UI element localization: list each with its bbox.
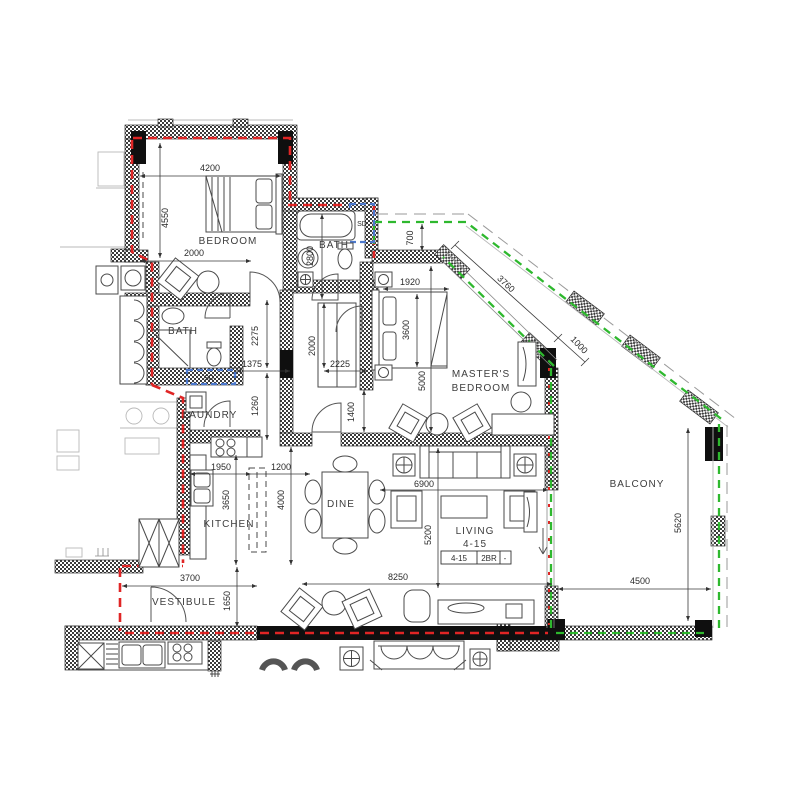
dim-2800: 2800 bbox=[305, 246, 315, 266]
bedroom-door bbox=[250, 272, 280, 302]
master-bedroom-furniture bbox=[372, 272, 554, 442]
dim-1650: 1650 bbox=[222, 591, 232, 611]
unit-tag: 4-15 2BR - bbox=[441, 551, 511, 564]
dim-4000: 4000 bbox=[276, 490, 286, 510]
room-label-living: LIVING bbox=[456, 526, 495, 537]
dim-1950: 1950 bbox=[211, 462, 231, 472]
dim-4200: 4200 bbox=[200, 163, 220, 173]
dim-6900: 6900 bbox=[414, 479, 434, 489]
living-lower-furniture bbox=[281, 588, 534, 630]
bath-left-fixtures bbox=[152, 308, 221, 368]
room-label-masters-2: BEDROOM bbox=[452, 383, 511, 394]
dim-5620: 5620 bbox=[673, 513, 683, 533]
lower-neighbour-furniture bbox=[78, 641, 490, 677]
room-label-balcony: BALCONY bbox=[610, 479, 665, 490]
dim-1375: 1375 bbox=[242, 359, 262, 369]
dim-2225: 2225 bbox=[330, 359, 350, 369]
room-label-masters-1: MASTER'S bbox=[452, 369, 510, 380]
dim-1200: 1200 bbox=[271, 462, 291, 472]
living-furniture bbox=[391, 446, 537, 532]
sd-label-left: SD bbox=[204, 375, 214, 382]
unit-tag-type: 2BR bbox=[481, 554, 497, 563]
room-label-bath-left: BATH bbox=[168, 326, 198, 337]
shaft bbox=[139, 519, 179, 567]
floor-plan-canvas: BEDROOM BATH BATH LAUNDRY KITCHEN VESTIB… bbox=[0, 0, 800, 800]
dim-4500: 4500 bbox=[630, 576, 650, 586]
dim-700: 700 bbox=[405, 230, 415, 245]
floor-plan-page: BEDROOM BATH BATH LAUNDRY KITCHEN VESTIB… bbox=[0, 0, 800, 800]
dim-4550: 4550 bbox=[160, 208, 170, 228]
furniture bbox=[78, 172, 554, 677]
corridor-fixtures bbox=[96, 266, 147, 384]
unit-tag-dash: - bbox=[504, 554, 507, 563]
dim-1400: 1400 bbox=[346, 402, 356, 422]
laundry-fixtures bbox=[186, 392, 206, 412]
dim-2275: 2275 bbox=[250, 326, 260, 346]
walls bbox=[55, 119, 725, 671]
dim-5000: 5000 bbox=[417, 371, 427, 391]
room-label-bath-top: BATH bbox=[319, 240, 349, 251]
dim-1920: 1920 bbox=[400, 277, 420, 287]
unit-tag-number: 4-15 bbox=[451, 554, 468, 563]
room-label-living-unit: 4-15 bbox=[463, 539, 487, 550]
room-label-bedroom: BEDROOM bbox=[199, 236, 258, 247]
balcony-slider-arrow bbox=[539, 528, 547, 554]
dim-3700: 3700 bbox=[180, 573, 200, 583]
dim-3600: 3600 bbox=[401, 320, 411, 340]
room-label-vestibule: VESTIBULE bbox=[152, 597, 216, 608]
hall-living-door bbox=[312, 403, 341, 432]
dim-1260: 1260 bbox=[250, 396, 260, 416]
dim-2000-bedroom: 2000 bbox=[184, 248, 204, 258]
room-label-laundry: LAUNDRY bbox=[183, 410, 238, 421]
dim-8250: 8250 bbox=[388, 572, 408, 582]
dim-3650: 3650 bbox=[221, 490, 231, 510]
room-label-dine: DINE bbox=[327, 499, 355, 510]
sd-label-top: SD bbox=[357, 221, 367, 228]
room-label-kitchen: KITCHEN bbox=[204, 519, 255, 530]
dim-5200: 5200 bbox=[423, 525, 433, 545]
dim-1000: 1000 bbox=[569, 334, 590, 355]
dim-2000-hall: 2000 bbox=[307, 336, 317, 356]
